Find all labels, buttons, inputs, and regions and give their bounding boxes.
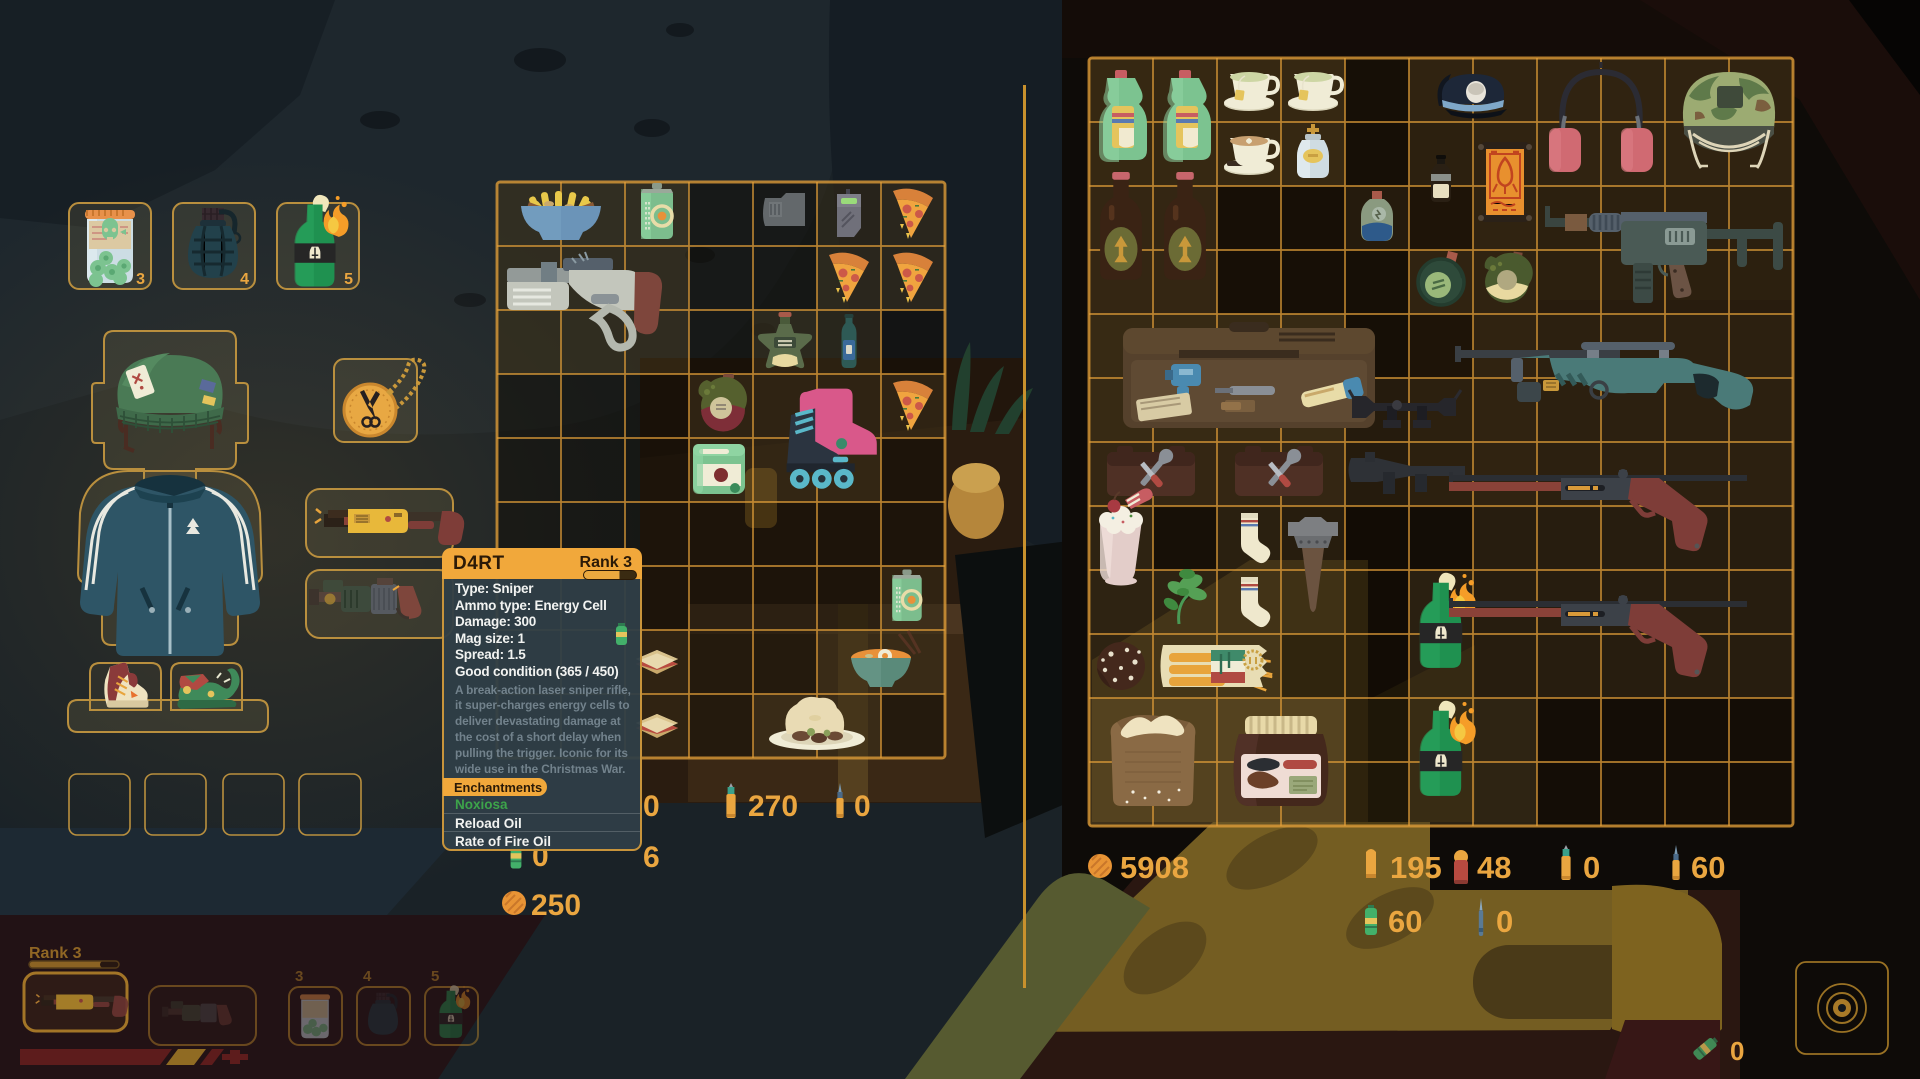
- svg-text:4: 4: [363, 968, 372, 985]
- svg-text:60: 60: [1691, 850, 1725, 885]
- svg-text:6: 6: [643, 841, 660, 874]
- svg-text:0: 0: [1583, 850, 1600, 885]
- svg-text:0: 0: [854, 790, 871, 823]
- svg-text:250: 250: [531, 889, 581, 922]
- svg-text:5: 5: [344, 271, 353, 288]
- svg-text:Rank 3: Rank 3: [29, 945, 82, 962]
- svg-text:0: 0: [1730, 1036, 1744, 1066]
- svg-text:195: 195: [1390, 850, 1442, 885]
- svg-text:0: 0: [643, 790, 660, 823]
- svg-text:3: 3: [136, 271, 145, 288]
- svg-text:60: 60: [1388, 904, 1422, 939]
- svg-text:5908: 5908: [1120, 850, 1189, 885]
- svg-text:270: 270: [748, 790, 798, 823]
- svg-text:3: 3: [295, 968, 303, 985]
- svg-text:5: 5: [431, 968, 439, 985]
- svg-text:4: 4: [240, 271, 249, 288]
- svg-text:48: 48: [1477, 850, 1511, 885]
- svg-text:0: 0: [1496, 904, 1513, 939]
